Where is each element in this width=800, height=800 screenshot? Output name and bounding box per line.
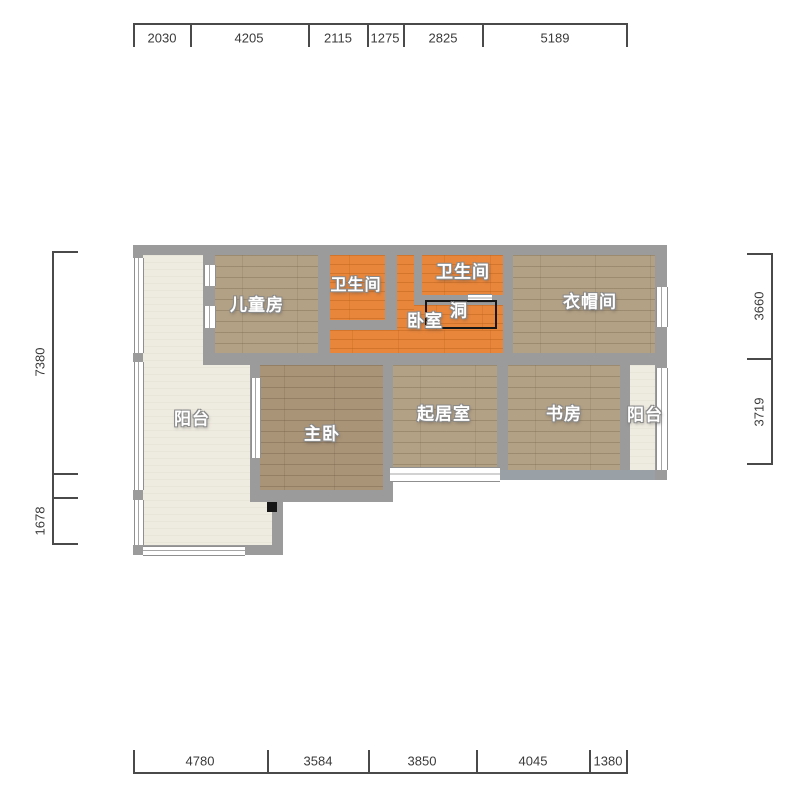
- dimension-tick: [368, 750, 370, 774]
- bedroom-floor-lower: [330, 330, 503, 353]
- dimension-tick: [52, 473, 78, 475]
- window-balcony-bottom: [143, 546, 245, 556]
- window-left-1: [134, 258, 144, 353]
- dimension-label-top-5: 2825: [429, 31, 458, 46]
- room-label-bathroom-2: 卫生间: [436, 258, 490, 283]
- wall-master-bottom: [250, 490, 393, 502]
- dimension-line-bottom: [133, 772, 628, 774]
- room-label-children: 儿童房: [230, 291, 284, 316]
- floor-plan-sheet: 儿童房 卫生间 卫生间 卧室 洞 衣帽间 阳台 主卧 起居室 书房 阳台 203…: [0, 0, 800, 800]
- wall-bathroom2-cloakroom-divider: [503, 255, 513, 365]
- room-label-balcony-left: 阳台: [174, 405, 210, 430]
- dimension-label-right-2: 3719: [752, 398, 767, 427]
- dimension-tick: [133, 750, 135, 774]
- dimension-tick: [367, 23, 369, 47]
- dimension-label-top-1: 2030: [148, 31, 177, 46]
- window-living-bottom: [390, 467, 500, 482]
- dimension-label-right-1: 3660: [752, 292, 767, 321]
- wall-top: [133, 245, 667, 255]
- dimension-tick: [52, 543, 78, 545]
- window-master-balcony: [251, 378, 261, 458]
- dimension-line-left: [52, 251, 54, 545]
- room-label-living: 起居室: [417, 400, 471, 425]
- wall-living-study-divider: [497, 365, 508, 480]
- window-left-2: [134, 362, 144, 490]
- wall-bathroom1-right: [385, 255, 397, 330]
- dimension-tick: [190, 23, 192, 47]
- dimension-line-top: [133, 23, 628, 25]
- dimension-label-top-4: 1275: [371, 31, 400, 46]
- dimension-tick: [626, 750, 628, 774]
- dimension-label-top-3: 2115: [324, 31, 352, 46]
- room-label-cloakroom: 衣帽间: [563, 288, 617, 313]
- dimension-label-bottom-3: 3850: [408, 754, 437, 769]
- column-block: [267, 502, 277, 512]
- dimension-label-bottom-5: 1380: [594, 754, 623, 769]
- window-children-left-1: [204, 265, 216, 286]
- dimension-tick: [482, 23, 484, 47]
- dimension-tick: [626, 23, 628, 47]
- dimension-tick: [476, 750, 478, 774]
- room-label-bathroom-1: 卫生间: [330, 271, 381, 295]
- room-label-hole: 洞: [450, 297, 468, 322]
- wall-left-top-corner: [133, 245, 143, 258]
- room-label-study: 书房: [546, 400, 582, 425]
- dimension-tick: [267, 750, 269, 774]
- dimension-tick: [747, 463, 773, 465]
- dimension-tick: [403, 23, 405, 47]
- dimension-label-bottom-1: 4780: [186, 754, 215, 769]
- wall-bottom-row: [500, 470, 667, 480]
- dimension-label-bottom-2: 3584: [304, 754, 333, 769]
- dimension-tick: [133, 23, 135, 47]
- window-left-3: [134, 500, 144, 545]
- dimension-tick: [308, 23, 310, 47]
- wall-left-chunk-1: [133, 353, 143, 362]
- dimension-label-left-1: 7380: [33, 348, 48, 377]
- window-right-1: [656, 287, 668, 327]
- dimension-label-left-2: 1678: [33, 507, 48, 536]
- dimension-label-bottom-4: 4045: [519, 754, 548, 769]
- dimension-label-top-2: 4205: [235, 31, 264, 46]
- room-label-bedroom: 卧室: [407, 307, 443, 332]
- wall-children-right: [318, 255, 330, 353]
- window-children-left-2: [204, 306, 216, 328]
- dimension-tick: [52, 497, 78, 499]
- dimension-tick: [589, 750, 591, 774]
- room-label-master: 主卧: [304, 420, 340, 445]
- dimension-tick: [52, 251, 78, 253]
- dimension-tick: [747, 253, 773, 255]
- dimension-label-top-6: 5189: [541, 31, 570, 46]
- room-label-balcony-right: 阳台: [627, 401, 663, 426]
- dimension-tick: [747, 358, 773, 360]
- wall-middle-horizontal: [203, 353, 667, 365]
- wall-left-chunk-2: [133, 490, 143, 500]
